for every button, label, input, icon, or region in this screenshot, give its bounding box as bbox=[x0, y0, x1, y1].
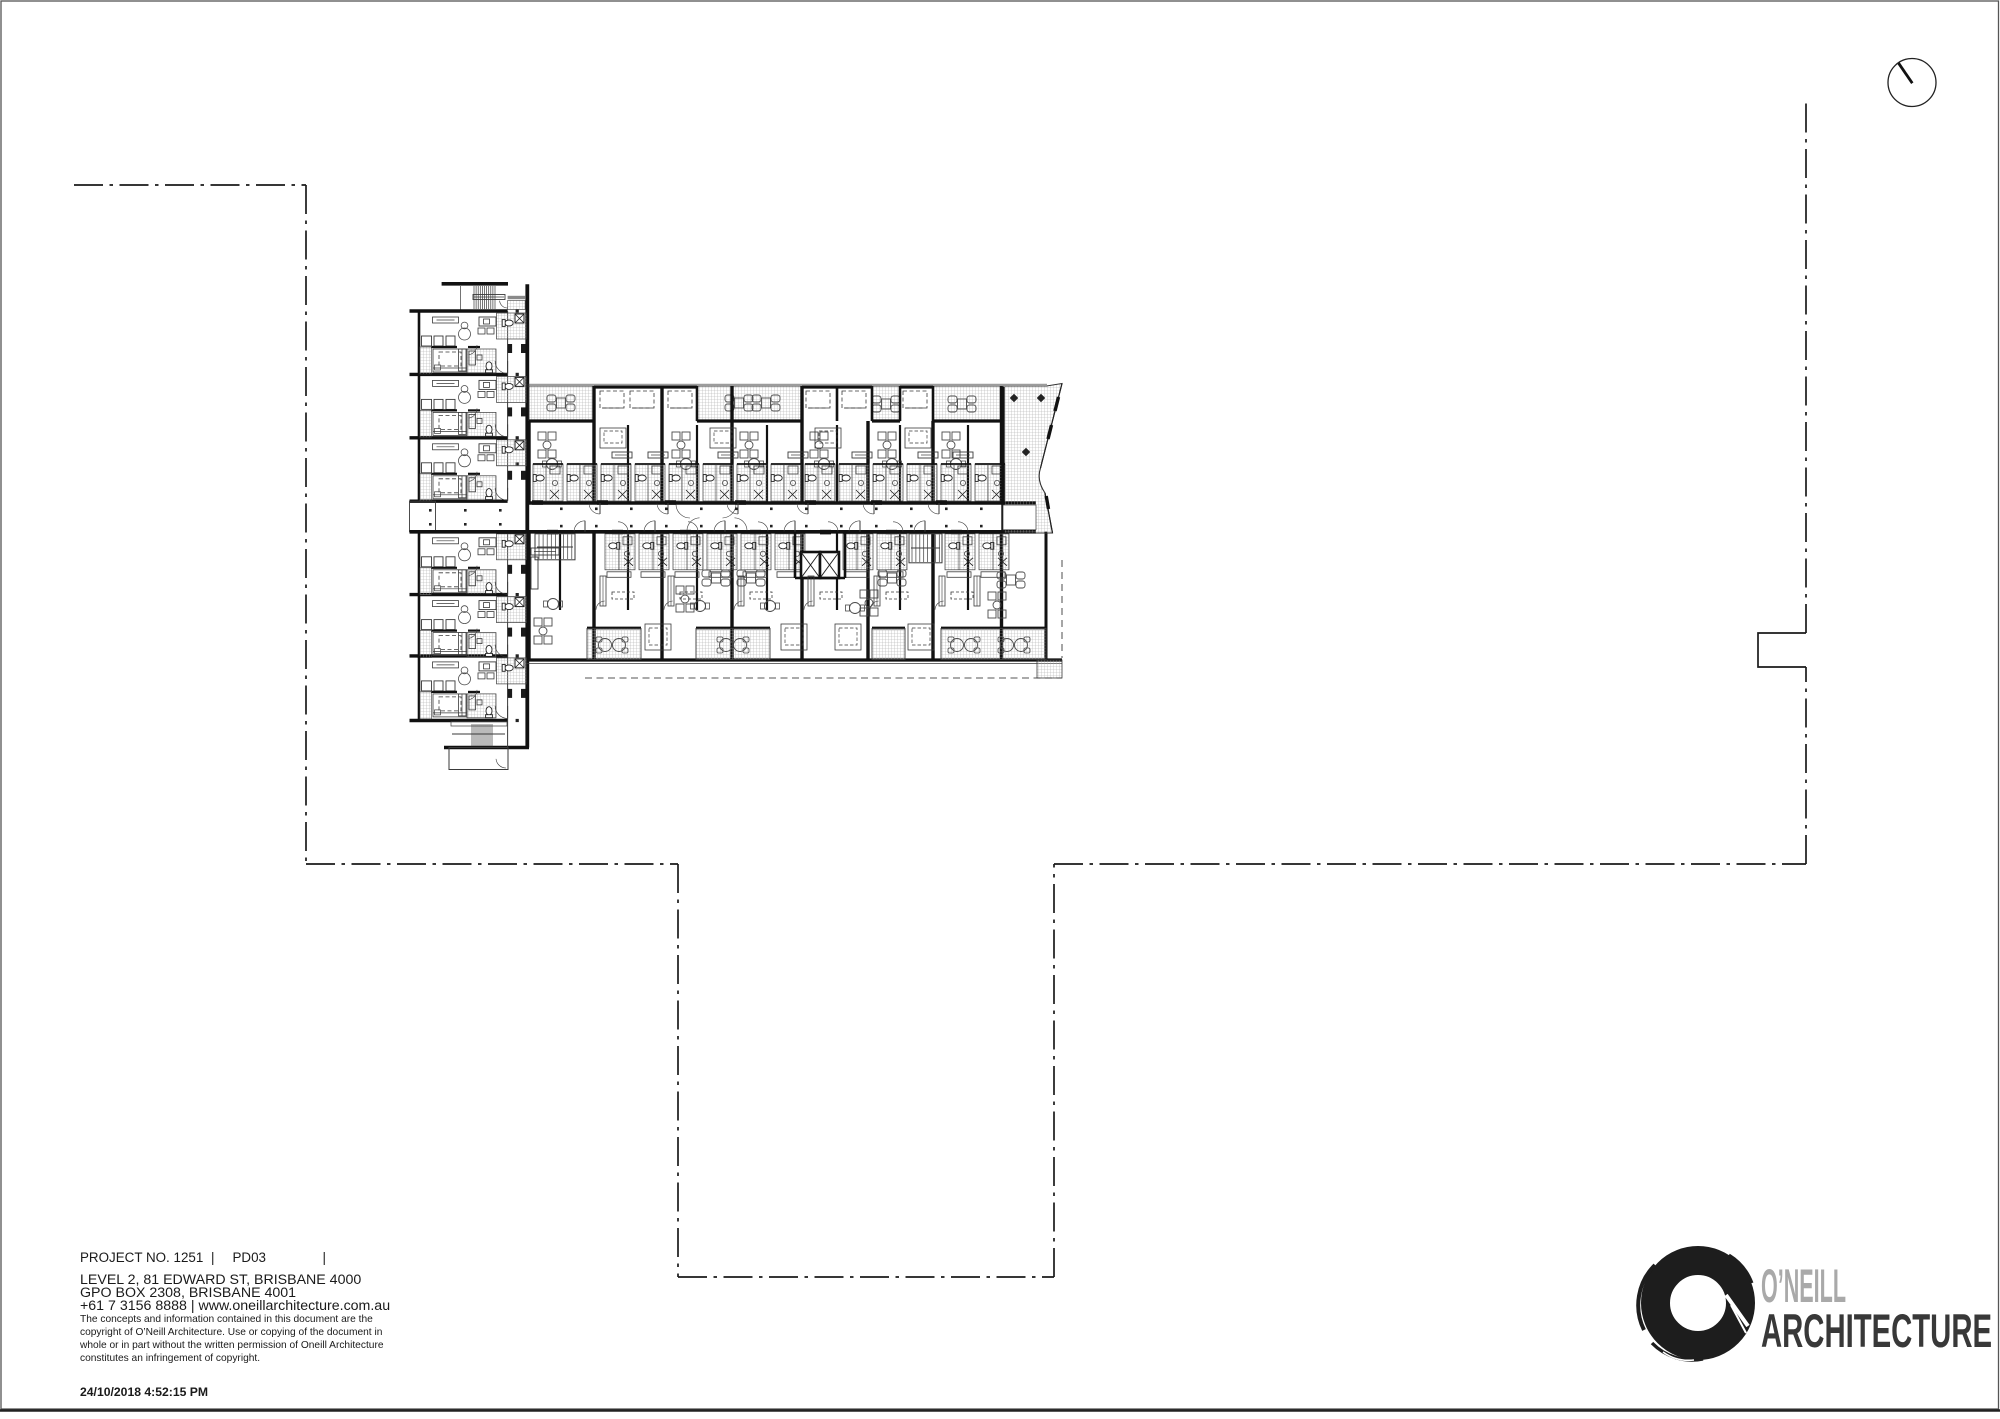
svg-text:The concepts and information c: The concepts and information contained i… bbox=[80, 1314, 373, 1325]
svg-text:PD03: PD03 bbox=[233, 1250, 267, 1265]
svg-text:whole or in part without the w: whole or in part without the written per… bbox=[79, 1340, 384, 1351]
svg-text:copyright of O’Neill Architect: copyright of O’Neill Architecture. Use o… bbox=[80, 1327, 382, 1338]
svg-text:+61 7 3156 8888 | www.oneillar: +61 7 3156 8888 | www.oneillarchitecture… bbox=[80, 1298, 390, 1314]
svg-text:constitutes an infringement of: constitutes an infringement of copyright… bbox=[80, 1353, 260, 1364]
svg-text:|: | bbox=[211, 1250, 214, 1265]
svg-text:ARCHITECTURE: ARCHITECTURE bbox=[1761, 1304, 1992, 1357]
svg-text:PROJECT NO. 1251: PROJECT NO. 1251 bbox=[80, 1250, 203, 1265]
svg-text:24/10/2018 4:52:15 PM: 24/10/2018 4:52:15 PM bbox=[80, 1385, 208, 1399]
svg-text:|: | bbox=[323, 1250, 326, 1265]
